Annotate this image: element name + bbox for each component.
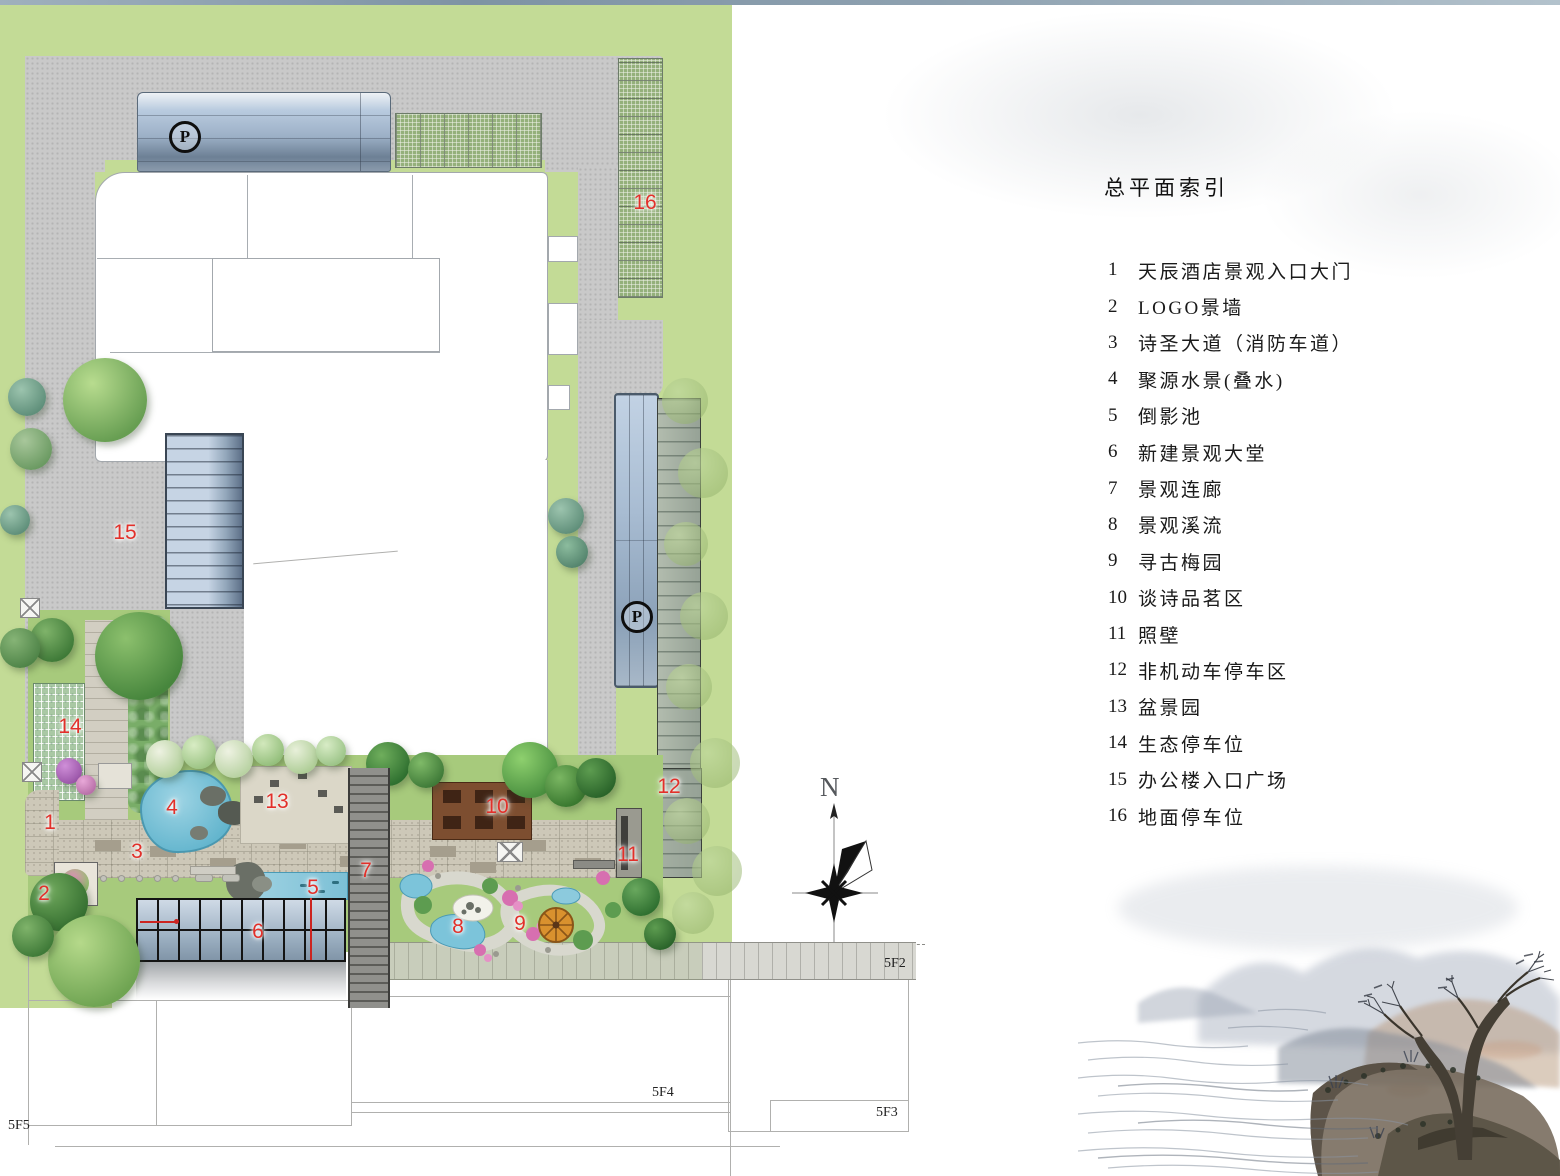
stone-pad	[195, 874, 213, 882]
plan-label-16: 16	[633, 191, 656, 215]
legend-item: 2LOGO景墙	[1108, 288, 1353, 324]
tree	[95, 612, 183, 700]
building-line	[110, 352, 440, 353]
legend-item-label: 新建景观大堂	[1138, 439, 1267, 466]
road-east-wide	[578, 320, 663, 398]
legend-item: 16地面停车位	[1108, 798, 1353, 834]
legend-item-label: LOGO景墙	[1138, 293, 1244, 320]
building-line	[412, 175, 413, 258]
stone-pad	[222, 874, 240, 882]
legend-item-label: 办公楼入口广场	[1138, 766, 1289, 793]
plan-label-5: 5	[307, 876, 319, 900]
road-east-upper	[578, 167, 618, 325]
plan-label-8: 8	[452, 915, 464, 939]
flower-shrub	[76, 775, 96, 795]
plan-label-15: 15	[113, 521, 136, 545]
legend-item-label: 寻古梅园	[1138, 548, 1224, 575]
tree	[316, 736, 346, 766]
legend-item-number: 12	[1108, 659, 1138, 681]
legend-item-number: 11	[1108, 623, 1138, 645]
building-annex	[548, 236, 578, 262]
legend-item-label: 盆景园	[1138, 693, 1203, 720]
floor-label-5f5: 5F5	[8, 1118, 30, 1134]
tea-table	[443, 816, 461, 829]
faint-tree	[662, 378, 708, 424]
faint-tree	[678, 448, 728, 498]
north-label: N	[820, 772, 840, 803]
bonsai-stand	[318, 790, 327, 797]
legend-item-label: 谈诗品茗区	[1138, 584, 1246, 611]
building-line	[156, 1000, 157, 1126]
plan-label-4: 4	[166, 796, 178, 820]
legend-item-number: 6	[1108, 441, 1138, 463]
stepping-stone	[100, 875, 107, 882]
legend-item-number: 9	[1108, 550, 1138, 572]
legend-item-number: 7	[1108, 478, 1138, 500]
legend-item-number: 13	[1108, 696, 1138, 718]
parking-letter: P	[632, 607, 642, 627]
legend-item-label: 景观溪流	[1138, 511, 1224, 538]
stepping-stone	[136, 875, 143, 882]
landscape-lobby-6	[136, 898, 346, 962]
tree	[48, 915, 140, 1007]
parking-symbol: P	[169, 121, 201, 153]
legend-item: 3诗圣大道（消防车道）	[1108, 325, 1353, 361]
legend-item: 6新建景观大堂	[1108, 434, 1353, 470]
stream-and-plum-garden	[398, 858, 623, 978]
legend: 1天辰酒店景观入口大门 2LOGO景墙 3诗圣大道（消防车道） 4聚源水景(叠水…	[1108, 252, 1353, 834]
tree	[252, 734, 284, 766]
parking-letter: P	[180, 127, 190, 147]
legend-item: 13盆景园	[1108, 689, 1353, 725]
legend-item-label: 非机动车停车区	[1138, 657, 1289, 684]
north-arrow	[780, 795, 890, 955]
tree	[12, 915, 54, 957]
legend-item-number: 15	[1108, 769, 1138, 791]
tree	[215, 740, 253, 778]
legend-item-number: 16	[1108, 805, 1138, 827]
plan-label-3: 3	[131, 840, 143, 864]
faint-tree	[666, 664, 712, 710]
plan-label-10: 10	[485, 795, 508, 819]
lobby-shadow	[136, 962, 346, 1000]
faint-tree	[664, 522, 708, 566]
grass-parking-16	[618, 58, 663, 298]
faint-tree	[692, 846, 742, 896]
section-line	[140, 921, 176, 923]
legend-item-number: 2	[1108, 296, 1138, 318]
legend-item: 12非机动车停车区	[1108, 652, 1353, 688]
tree	[644, 918, 676, 950]
building-annex	[548, 303, 578, 355]
master-plan-sheet: P P 1 2 3 4 5 6 7 8 9 10 11 12 13 14 15 …	[0, 0, 1560, 1176]
building-court	[244, 460, 548, 770]
legend-item: 15办公楼入口广场	[1108, 761, 1353, 797]
parking-symbol: P	[621, 601, 653, 633]
tree	[146, 740, 184, 778]
fish-mark	[300, 884, 307, 887]
tree	[548, 498, 584, 534]
bonsai-garden-13	[240, 766, 352, 844]
bonsai-stand	[334, 806, 343, 813]
property-line	[55, 1146, 780, 1147]
legend-item: 5倒影池	[1108, 398, 1353, 434]
floor-label-5f2: 5F2	[884, 956, 906, 972]
faint-tree	[672, 892, 714, 934]
bench-slab	[98, 763, 132, 789]
legend-item: 1天辰酒店景观入口大门	[1108, 252, 1353, 288]
road-east-lower	[578, 395, 616, 770]
rock	[252, 876, 272, 892]
legend-item-number: 3	[1108, 332, 1138, 354]
tree	[0, 628, 40, 668]
office-entrance-canopy	[165, 433, 244, 609]
building-line	[352, 1112, 730, 1113]
legend-item-label: 诗圣大道（消防车道）	[1138, 329, 1353, 356]
tree	[63, 358, 147, 442]
faint-tree	[664, 798, 710, 844]
plan-label-12: 12	[657, 775, 680, 799]
legend-item: 8景观溪流	[1108, 507, 1353, 543]
plan-label-6: 6	[252, 920, 264, 944]
grass-parking-patch	[395, 113, 542, 168]
faint-tree	[690, 738, 740, 788]
floor-label-5f4: 5F4	[652, 1085, 674, 1101]
rock	[190, 826, 208, 840]
tree	[182, 735, 216, 769]
plan-label-1: 1	[44, 811, 56, 835]
bonsai-stand	[270, 780, 279, 787]
column-marker	[20, 598, 40, 618]
legend-item: 10谈诗品茗区	[1108, 580, 1353, 616]
tree	[0, 505, 30, 535]
legend-item: 14生态停车位	[1108, 725, 1353, 761]
paver-brick	[430, 846, 456, 857]
tree	[576, 758, 616, 798]
legend-item: 4聚源水景(叠水)	[1108, 361, 1353, 397]
building-line	[352, 1102, 730, 1103]
tree	[284, 740, 318, 774]
tree	[622, 878, 660, 916]
tree	[408, 752, 444, 788]
building-annex	[548, 385, 570, 410]
legend-item-label: 生态停车位	[1138, 730, 1246, 757]
covered-corridor-7	[348, 768, 390, 1008]
bench-slab	[190, 866, 236, 875]
plan-label-2: 2	[38, 882, 50, 906]
column-marker	[22, 762, 42, 782]
legend-item-number: 1	[1108, 259, 1138, 281]
building-line	[770, 1100, 771, 1132]
tea-table	[443, 790, 461, 803]
legend-item-label: 聚源水景(叠水)	[1138, 366, 1285, 393]
tree	[10, 428, 52, 470]
plan-label-13: 13	[265, 790, 288, 814]
legend-item: 9寻古梅园	[1108, 543, 1353, 579]
section-line	[310, 898, 312, 960]
legend-item-label: 天辰酒店景观入口大门	[1138, 257, 1353, 284]
building-line	[352, 996, 730, 997]
plan-label-9: 9	[514, 912, 526, 936]
legend-item-label: 倒影池	[1138, 402, 1203, 429]
paver-brick	[520, 840, 546, 851]
building-outline-5f5	[28, 1000, 352, 1126]
legend-item-number: 14	[1108, 732, 1138, 754]
fish-mark	[332, 881, 339, 884]
legend-item-number: 5	[1108, 405, 1138, 427]
legend-item: 11照壁	[1108, 616, 1353, 652]
ink-painting	[1078, 838, 1560, 1176]
stepping-stone	[172, 875, 179, 882]
paver-brick	[95, 840, 121, 851]
legend-title: 总平面索引	[1104, 172, 1229, 202]
plan-label-7: 7	[360, 859, 372, 883]
plan-label-14: 14	[58, 715, 81, 739]
legend-item-label: 地面停车位	[1138, 803, 1246, 830]
building-line	[247, 175, 248, 258]
plan-label-11: 11	[617, 843, 639, 867]
floor-label-5f3: 5F3	[876, 1105, 898, 1121]
legend-item-number: 8	[1108, 514, 1138, 536]
bonsai-stand	[254, 796, 263, 803]
section-dot	[174, 919, 179, 924]
stepping-stone	[154, 875, 161, 882]
faint-tree	[680, 592, 728, 640]
building-inner-wing	[212, 258, 440, 352]
tree	[556, 536, 588, 568]
legend-item: 7景观连廊	[1108, 470, 1353, 506]
legend-item-number: 10	[1108, 587, 1138, 609]
legend-item-label: 景观连廊	[1138, 475, 1224, 502]
tea-table	[507, 816, 525, 829]
legend-item-number: 4	[1108, 368, 1138, 390]
stepping-stone	[118, 875, 125, 882]
tree	[8, 378, 46, 416]
legend-item-label: 照壁	[1138, 621, 1181, 648]
building-line	[770, 1100, 909, 1101]
parking-ramp-canopy-east	[614, 393, 659, 688]
